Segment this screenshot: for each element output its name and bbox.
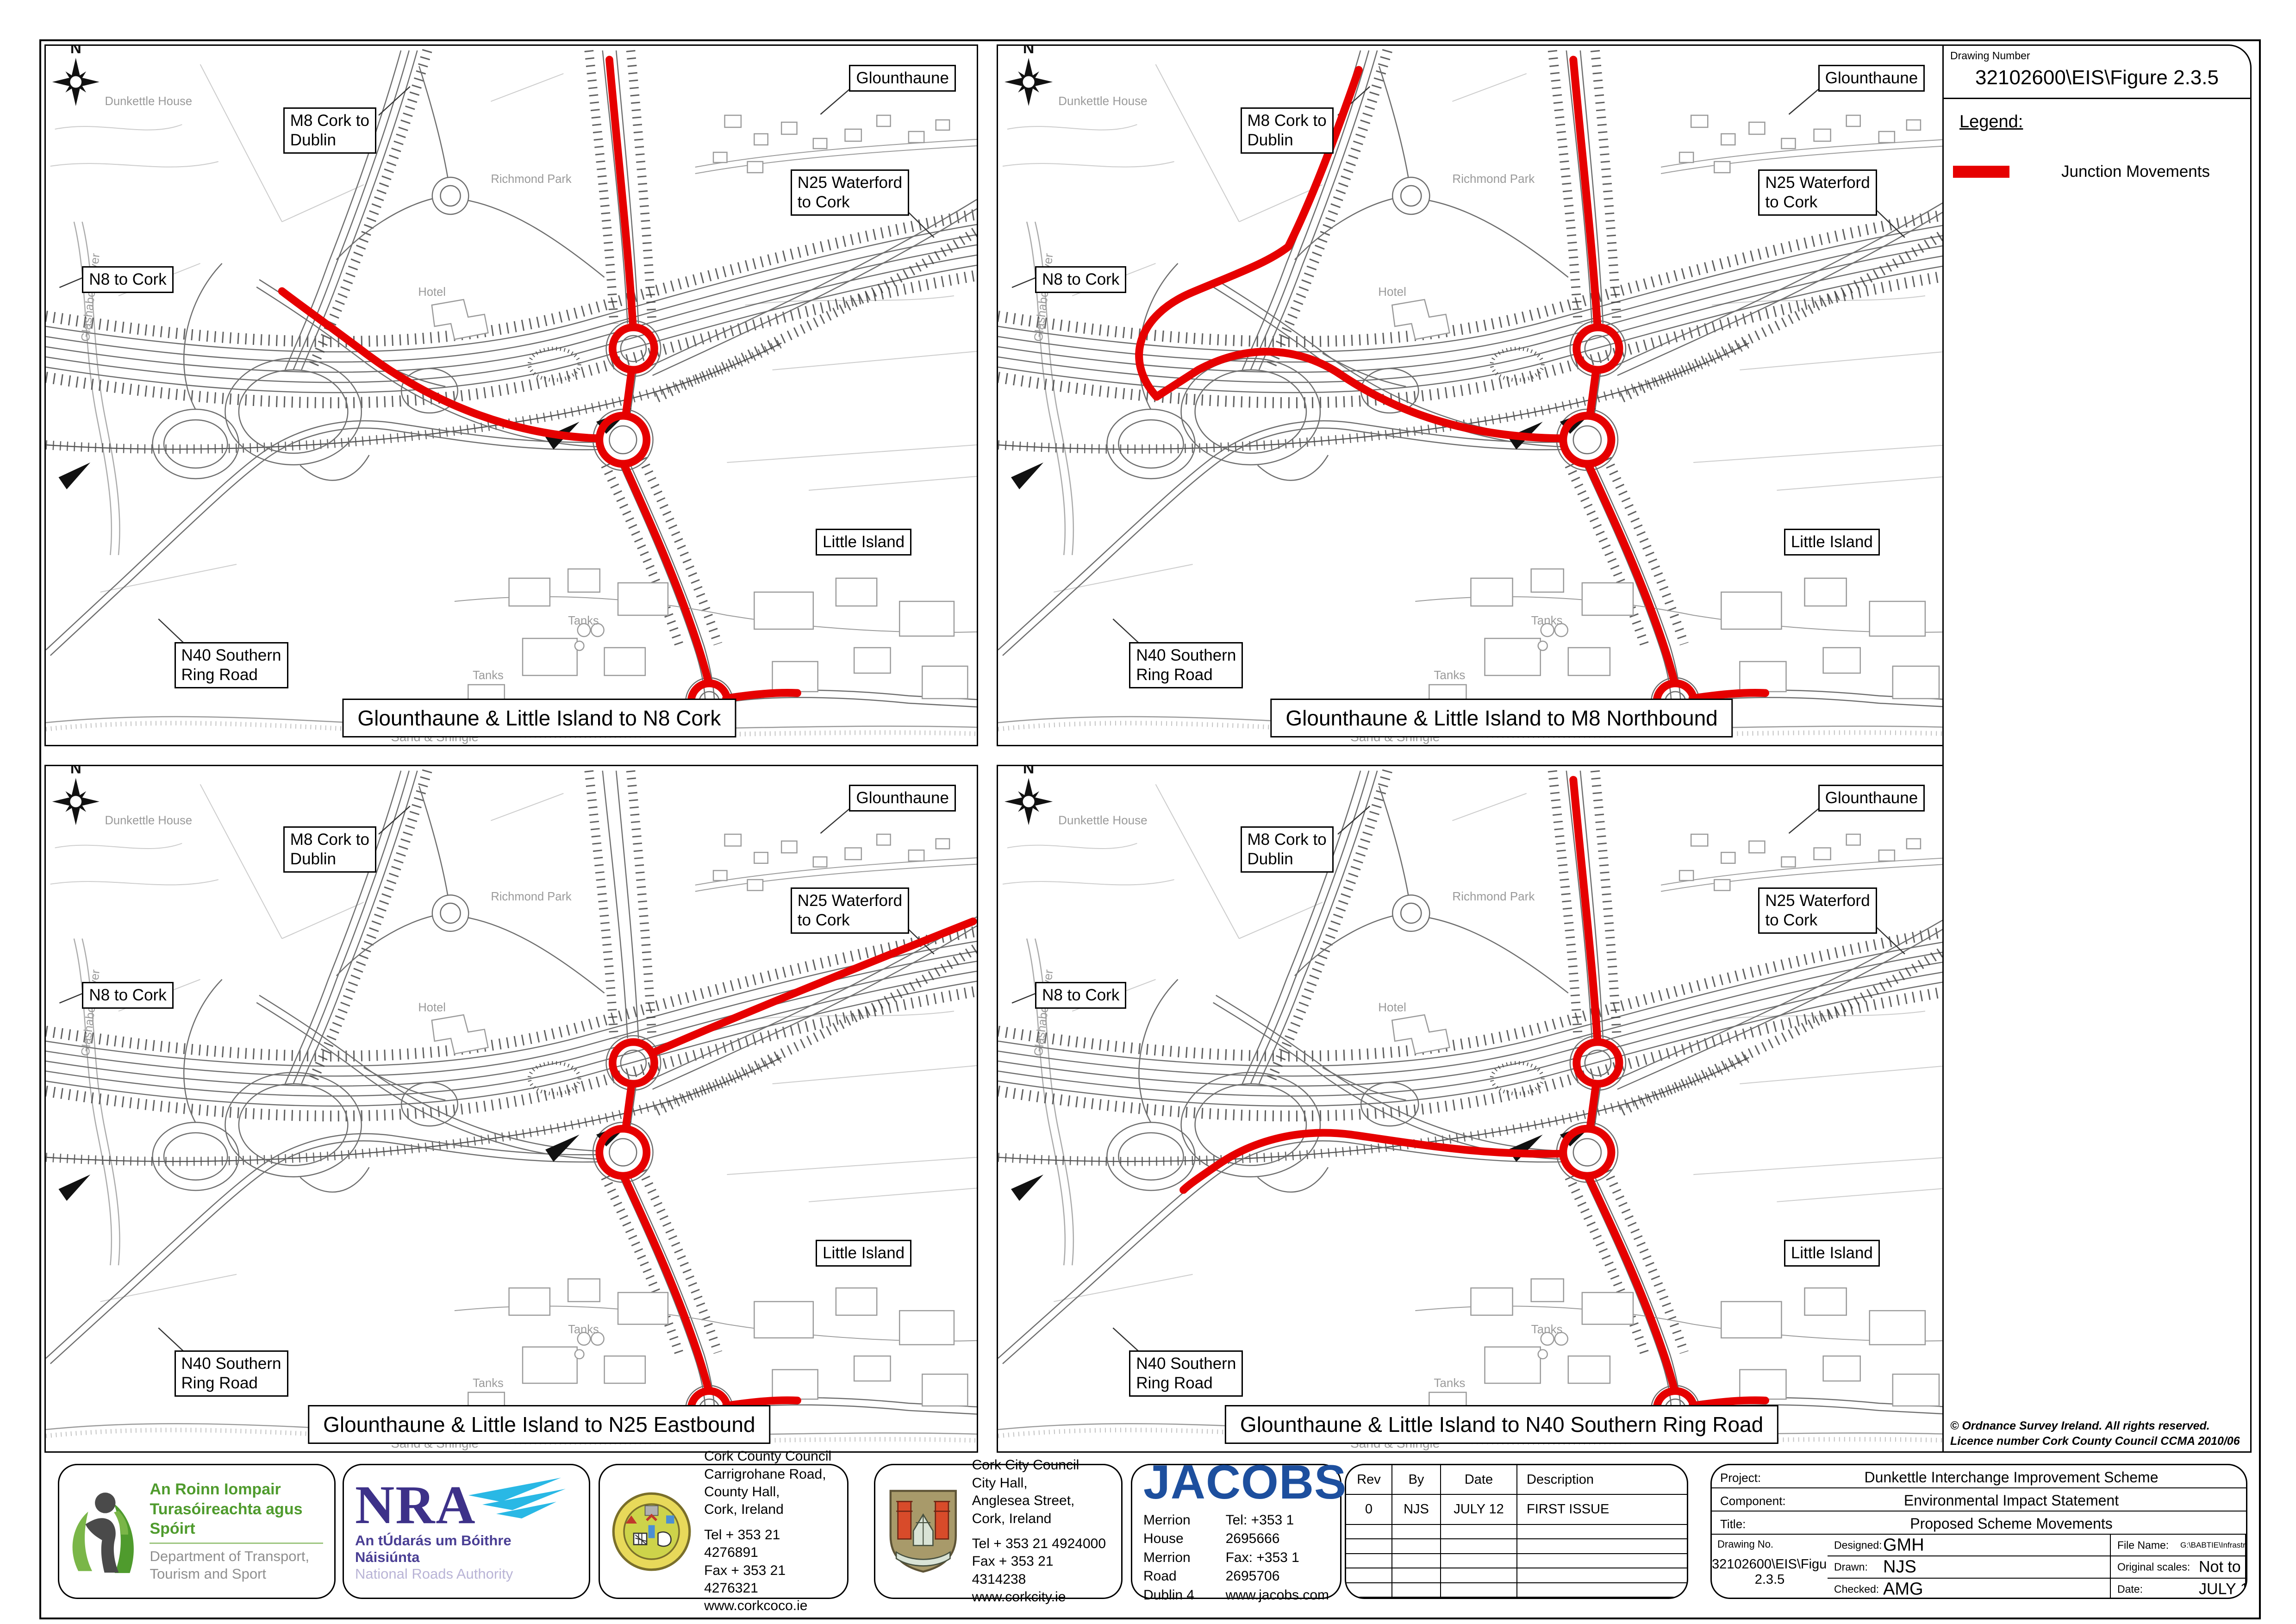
dept-irish-line1: An Roinn Iompair xyxy=(150,1480,281,1498)
drawn-cell: Drawn: NJS xyxy=(1828,1556,2111,1578)
callout-little-island: Little Island xyxy=(1784,1240,1880,1267)
rev-cell: JULY 12 xyxy=(1441,1495,1517,1524)
rev-header-by: By xyxy=(1392,1465,1441,1495)
coco-name: Cork County Council xyxy=(704,1448,836,1465)
coco-addr1: Carrigrohane Road, xyxy=(704,1466,836,1483)
callout-n8: N8 to Cork xyxy=(1035,266,1126,293)
sidebar: Drawing Number 32102600\EIS\Figure 2.3.5… xyxy=(1942,44,2252,1453)
callout-m8-line1: M8 Cork to xyxy=(1248,831,1327,849)
callout-n8: N8 to Cork xyxy=(82,266,173,293)
junction-movement-route xyxy=(599,921,973,1427)
title-block: Project: Dunkettle Interchange Improveme… xyxy=(1710,1464,2247,1599)
drawing-no-value: 32102600\EIS\Figure 2.3.5 xyxy=(1712,1557,1828,1587)
callout-m8: M8 Cork toDublin xyxy=(1241,107,1334,154)
legend: Legend: Junction Movements xyxy=(1944,99,2250,181)
callout-n40-line1: N40 Southern xyxy=(1136,646,1236,664)
scale-value: Not to Scale xyxy=(2199,1558,2246,1576)
callout-n25-line1: N25 Waterford xyxy=(798,892,902,910)
file-name-label: File Name: xyxy=(2117,1539,2169,1551)
coco-tel: Tel + 353 21 4276891 xyxy=(704,1526,836,1562)
city-addr1: City Hall, xyxy=(972,1474,1110,1492)
checked-value: AMG xyxy=(1883,1580,1923,1599)
nra-swoosh-icon xyxy=(468,1478,566,1519)
callout-n25-line2: to Cork xyxy=(798,193,850,211)
logo-nra: NRA An tÚdarás um Bóithre Náisiúnta Nati… xyxy=(343,1464,590,1599)
panel-title: Glounthaune & Little Island to N25 Eastb… xyxy=(308,1405,770,1444)
logo-dept-transport: An Roinn IompairTurasóireachta agus Spói… xyxy=(58,1464,336,1599)
date-label: Date: xyxy=(2117,1583,2143,1596)
callout-n25-line2: to Cork xyxy=(798,911,850,929)
callout-m8-line1: M8 Cork to xyxy=(290,112,369,130)
jacobs-addr3: Dublin 4 xyxy=(1143,1586,1198,1605)
rev-cell-empty xyxy=(1517,1554,1687,1568)
rev-header-rev: Rev xyxy=(1346,1465,1392,1495)
rev-cell-empty xyxy=(1441,1539,1517,1554)
nra-wordmark: NRA xyxy=(355,1474,476,1535)
city-web: www.corkcity.ie xyxy=(972,1588,1110,1606)
callout-n40-line1: N40 Southern xyxy=(181,646,281,664)
callout-n40: N40 SouthernRing Road xyxy=(175,642,288,688)
date-cell: Date: JULY 12 xyxy=(2111,1579,2246,1599)
callout-m8-line2: Dublin xyxy=(1248,850,1293,868)
cork-county-crest-icon xyxy=(611,1489,692,1574)
drawn-value: NJS xyxy=(1883,1557,1916,1577)
rev-cell-empty xyxy=(1441,1525,1517,1539)
logo-cork-city-council: Cork City Council City Hall, Anglesea St… xyxy=(874,1464,1123,1599)
map-panel-n40-ring-road: Glounthaune M8 Cork toDublin N25 Waterfo… xyxy=(997,765,1950,1453)
rev-cell-empty xyxy=(1517,1583,1687,1598)
rev-cell-empty xyxy=(1441,1583,1517,1598)
callout-n40-line1: N40 Southern xyxy=(181,1355,281,1373)
scale-cell: Original scales: Not to Scale xyxy=(2111,1556,2246,1578)
rev-cell-empty xyxy=(1441,1568,1517,1583)
callout-m8: M8 Cork toDublin xyxy=(1241,826,1334,873)
jacobs-addr2: Merrion Road xyxy=(1143,1549,1198,1586)
revision-table: Rev By Date Description 0 NJS JULY 12 FI… xyxy=(1345,1464,1688,1599)
map-panel-m8-northbound: Glounthaune M8 Cork toDublin N25 Waterfo… xyxy=(997,44,1950,746)
callout-n25-line1: N25 Waterford xyxy=(1765,892,1870,910)
city-fax: Fax + 353 21 4314238 xyxy=(972,1553,1110,1588)
rev-cell: NJS xyxy=(1392,1495,1441,1524)
rev-cell-empty xyxy=(1392,1554,1441,1568)
map-panel-n8-cork: Glounthaune M8 Cork toDublin N25 Waterfo… xyxy=(44,44,978,746)
junction-movement-route xyxy=(1139,60,1766,720)
rev-cell: 0 xyxy=(1346,1495,1392,1524)
checked-label: Checked: xyxy=(1834,1583,1879,1596)
title-row: Title: Proposed Scheme Movements xyxy=(1712,1512,2246,1535)
component-label: Component: xyxy=(1720,1494,1786,1508)
drawing-no-cell: Drawing No. 32102600\EIS\Figure 2.3.5 xyxy=(1712,1535,1828,1599)
drawing-number-value: 32102600\EIS\Figure 2.3.5 xyxy=(1944,66,2250,89)
callout-n40: N40 SouthernRing Road xyxy=(175,1350,288,1397)
callout-n25: N25 Waterfordto Cork xyxy=(1758,169,1877,216)
jacobs-web: www.jacobs.com xyxy=(1226,1586,1329,1605)
dept-divider xyxy=(150,1543,323,1544)
callout-n25-line1: N25 Waterford xyxy=(1765,174,1870,192)
callout-m8-line2: Dublin xyxy=(1248,131,1293,149)
title-value: Proposed Scheme Movements xyxy=(1786,1515,2237,1532)
drawing-number-label: Drawing Number xyxy=(1950,50,2030,62)
designed-cell: Designed: GMH xyxy=(1828,1535,2111,1556)
callout-little-island: Little Island xyxy=(816,1240,911,1267)
designed-label: Designed: xyxy=(1834,1539,1882,1551)
callout-n8: N8 to Cork xyxy=(82,982,173,1009)
title-label: Title: xyxy=(1720,1517,1746,1531)
panel-title: Glounthaune & Little Island to N40 South… xyxy=(1225,1405,1778,1444)
callout-glounthaune: Glounthaune xyxy=(849,785,955,812)
callout-glounthaune: Glounthaune xyxy=(1818,785,1925,812)
rev-cell-empty xyxy=(1517,1568,1687,1583)
scale-label: Original scales: xyxy=(2117,1561,2190,1573)
jacobs-fax: Fax: +353 1 2695706 xyxy=(1226,1549,1329,1586)
coco-web: www.corkcoco.ie xyxy=(704,1597,836,1615)
rev-cell-empty xyxy=(1346,1539,1392,1554)
callout-n40-line2: Ring Road xyxy=(181,1374,258,1392)
dept-irish-line2: Turasóireachta agus Spóirt xyxy=(150,1500,302,1538)
callout-glounthaune: Glounthaune xyxy=(1818,65,1925,92)
dept-transport-icon xyxy=(70,1480,137,1582)
legend-row: Junction Movements xyxy=(1959,162,2250,181)
dept-english-line2: Tourism and Sport xyxy=(150,1566,266,1582)
jacobs-addr1: Merrion House xyxy=(1143,1511,1198,1549)
map-canvas xyxy=(998,46,1948,745)
callout-m8-line2: Dublin xyxy=(290,850,336,868)
callout-n25-line1: N25 Waterford xyxy=(798,174,902,192)
rev-header-date: Date xyxy=(1441,1465,1517,1495)
callout-m8-line1: M8 Cork to xyxy=(1248,112,1327,130)
rev-cell: FIRST ISSUE xyxy=(1517,1495,1687,1524)
callout-n40-line1: N40 Southern xyxy=(1136,1355,1236,1373)
city-addr3: Cork, Ireland xyxy=(972,1510,1110,1528)
rev-cell-empty xyxy=(1517,1525,1687,1539)
rev-cell-empty xyxy=(1392,1568,1441,1583)
coco-fax: Fax + 353 21 4276321 xyxy=(704,1562,836,1598)
junction-movement-route xyxy=(1184,780,1766,1427)
project-value: Dunkettle Interchange Improvement Scheme xyxy=(1786,1469,2237,1486)
component-row: Component: Environmental Impact Statemen… xyxy=(1712,1488,2246,1512)
callout-n25: N25 Waterfordto Cork xyxy=(1758,887,1877,934)
drawing-number-cell: Drawing Number 32102600\EIS\Figure 2.3.5 xyxy=(1944,46,2250,99)
nra-english-name: National Roads Authority xyxy=(355,1566,578,1582)
callout-n25: N25 Waterfordto Cork xyxy=(791,887,909,934)
rev-cell-empty xyxy=(1346,1525,1392,1539)
rev-header-description: Description xyxy=(1517,1465,1687,1495)
map-canvas xyxy=(46,46,977,745)
city-name: Cork City Council xyxy=(972,1456,1110,1474)
callout-m8-line2: Dublin xyxy=(290,131,336,149)
callout-n25-line2: to Cork xyxy=(1765,193,1817,211)
rev-cell-empty xyxy=(1346,1568,1392,1583)
callout-n40-line2: Ring Road xyxy=(1136,1374,1212,1392)
callout-n8: N8 to Cork xyxy=(1035,982,1126,1009)
date-value: JULY 12 xyxy=(2199,1580,2246,1599)
rev-cell-empty xyxy=(1392,1583,1441,1598)
copyright-note: © Ordnance Survey Ireland. All rights re… xyxy=(1950,1418,2244,1449)
city-addr2: Anglesea Street, xyxy=(972,1492,1110,1510)
callout-n40: N40 SouthernRing Road xyxy=(1129,1350,1243,1397)
jacobs-wordmark: JACOBS xyxy=(1143,1458,1347,1506)
logo-jacobs: JACOBS Merrion House Merrion Road Dublin… xyxy=(1131,1464,1341,1599)
coco-addr2: County Hall, xyxy=(704,1483,836,1501)
nra-irish-name: An tÚdarás um Bóithre Náisiúnta xyxy=(355,1532,578,1566)
city-tel: Tel + 353 21 4924000 xyxy=(972,1535,1110,1553)
panel-title: Glounthaune & Little Island to M8 Northb… xyxy=(1270,699,1733,737)
project-label: Project: xyxy=(1720,1471,1761,1485)
file-name-cell: File Name: G:\BABTIE\Infrastructure\high… xyxy=(2111,1535,2246,1556)
panel-title: Glounthaune & Little Island to N8 Cork xyxy=(342,699,736,737)
rev-cell-empty xyxy=(1517,1539,1687,1554)
checked-cell: Checked: AMG xyxy=(1828,1579,2111,1599)
callout-n40-line2: Ring Road xyxy=(1136,666,1212,684)
rev-cell-empty xyxy=(1392,1525,1441,1539)
callout-glounthaune: Glounthaune xyxy=(849,65,955,92)
callout-little-island: Little Island xyxy=(816,529,911,556)
designed-value: GMH xyxy=(1883,1535,1924,1555)
cork-city-crest-icon xyxy=(886,1487,960,1577)
dept-english-line1: Department of Transport, xyxy=(150,1548,309,1564)
rev-cell-empty xyxy=(1392,1539,1441,1554)
callout-n40: N40 SouthernRing Road xyxy=(1129,642,1243,688)
logo-cork-county-council: Cork County Council Carrigrohane Road, C… xyxy=(599,1464,849,1599)
callout-m8: M8 Cork toDublin xyxy=(283,826,376,873)
drawing-no-label: Drawing No. xyxy=(1717,1538,1773,1550)
callout-n40-line2: Ring Road xyxy=(181,666,258,684)
map-canvas xyxy=(998,766,1948,1451)
callout-n25-line2: to Cork xyxy=(1765,911,1817,929)
rev-cell-empty xyxy=(1346,1583,1392,1598)
file-name-value: G:\BABTIE\Infrastructure\highways\321026… xyxy=(2180,1541,2246,1550)
rev-cell-empty xyxy=(1346,1554,1392,1568)
junction-movements-swatch xyxy=(1953,166,2009,178)
jacobs-tel: Tel: +353 1 2695666 xyxy=(1226,1511,1329,1549)
map-canvas xyxy=(46,766,977,1451)
component-value: Environmental Impact Statement xyxy=(1786,1492,2237,1509)
rev-cell-empty xyxy=(1441,1554,1517,1568)
project-row: Project: Dunkettle Interchange Improveme… xyxy=(1712,1465,2246,1488)
coco-addr3: Cork, Ireland xyxy=(704,1501,836,1518)
drawn-label: Drawn: xyxy=(1834,1561,1868,1573)
legend-item-label: Junction Movements xyxy=(2061,162,2210,181)
callout-m8-line1: M8 Cork to xyxy=(290,831,369,849)
callout-little-island: Little Island xyxy=(1784,529,1880,556)
legend-title: Legend: xyxy=(1959,112,2250,132)
callout-n25: N25 Waterfordto Cork xyxy=(791,169,909,216)
callout-m8: M8 Cork toDublin xyxy=(283,107,376,154)
map-panel-n25-eastbound: Glounthaune M8 Cork toDublin N25 Waterfo… xyxy=(44,765,978,1453)
